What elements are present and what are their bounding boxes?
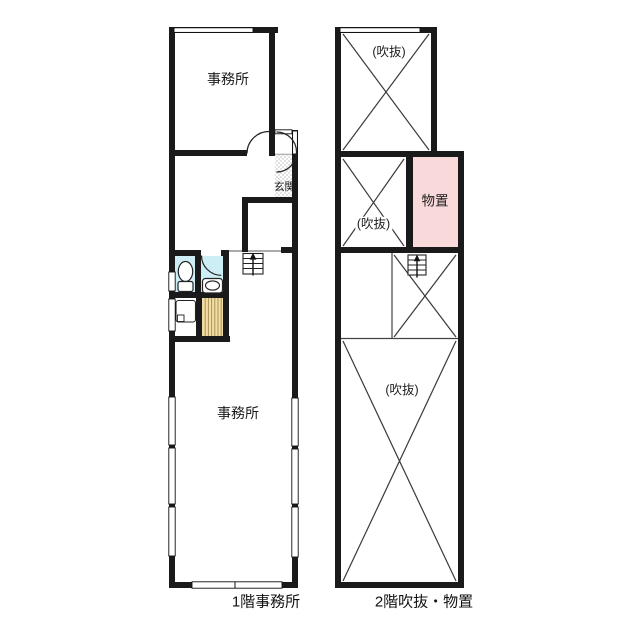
washer-pan-icon — [176, 301, 196, 323]
void-top-label: (吹抜) — [370, 45, 407, 60]
floorplan-drawing — [0, 0, 640, 639]
floor1-plan — [169, 27, 298, 588]
stairs-up-indicator-1f — [243, 253, 263, 276]
entrance-label: 玄関 — [274, 182, 295, 193]
void-mid-label: (吹抜) — [355, 217, 392, 232]
office-main-label: 事務所 — [217, 406, 259, 420]
void-bottom-label: (吹抜) — [383, 383, 420, 398]
office-door-arc — [247, 132, 269, 154]
stairs-up-indicator-2f — [408, 255, 426, 278]
office-upper-label: 事務所 — [207, 72, 249, 86]
floor1-caption: 1階事務所 — [232, 595, 300, 610]
floor2-thin-lines — [341, 253, 458, 339]
floorplan-canvas: 事務所 玄関 事務所 1階事務所 (吹抜) (吹抜) 物置 (吹抜) 2階吹抜・… — [0, 0, 640, 639]
sink-icon — [203, 279, 223, 294]
void-cross-lines — [343, 34, 456, 581]
floor2-caption: 2階吹抜・物置 — [375, 595, 473, 610]
storage-label: 物置 — [422, 194, 449, 208]
floor2-top-window — [340, 28, 420, 33]
floor2-plan — [335, 27, 464, 588]
toilet-icon — [178, 262, 193, 292]
